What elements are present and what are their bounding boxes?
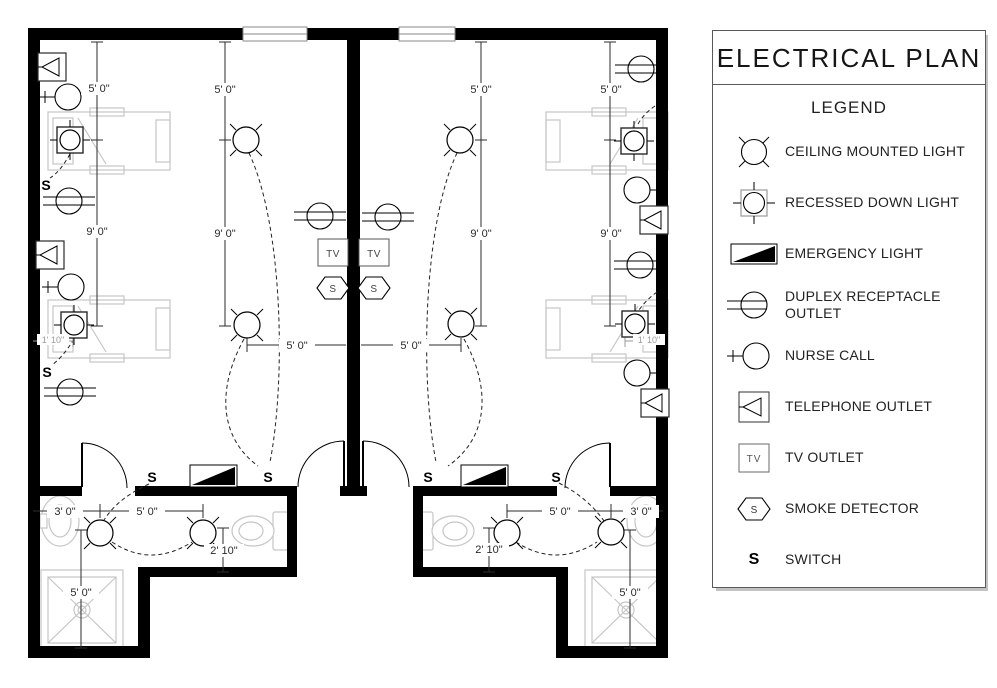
legend-label: TV OUTLET xyxy=(785,449,864,466)
legend-heading: LEGEND xyxy=(713,98,985,118)
legend-label: NURSE CALL xyxy=(785,347,875,364)
legend-item-ceiling-mounted-light: CEILING MOUNTED LIGHT xyxy=(713,126,985,177)
nurse-call-symbol xyxy=(39,84,81,110)
dim-label: 9' 0" xyxy=(470,228,491,240)
dim-label: 9' 0" xyxy=(86,226,107,238)
wall-bath-right xyxy=(413,486,423,577)
telephone-outlet-symbol xyxy=(640,206,668,234)
nurse-call-symbol xyxy=(42,274,84,300)
dim-label: 2' 10" xyxy=(210,545,238,557)
switch-icon-label: S xyxy=(749,551,760,569)
switch-symbol: S xyxy=(551,469,560,485)
legend-label: SMOKE DETECTOR xyxy=(785,500,919,517)
smoke-detector-label: S xyxy=(370,284,377,295)
dim-label: 9' 0" xyxy=(600,228,621,240)
shower xyxy=(585,570,667,650)
legend-label: EMERGENCY LIGHT xyxy=(785,245,923,262)
tv-outlet-icon: TV xyxy=(723,440,785,476)
switch-symbol: S xyxy=(147,469,156,485)
legend-label: TELEPHONE OUTLET xyxy=(785,398,932,415)
wall-bath-left xyxy=(287,486,297,577)
wall-bottom-right xyxy=(556,646,668,658)
switch-symbol: S xyxy=(42,364,51,380)
dim-label: 5' 0" xyxy=(600,84,621,96)
ceiling-light-symbol xyxy=(84,517,116,549)
door-swing xyxy=(363,441,409,487)
legend-items: CEILING MOUNTED LIGHT RECESSED DOWN LIGH… xyxy=(713,126,985,585)
shower xyxy=(41,570,123,650)
dim-label: 5' 0" xyxy=(214,84,235,96)
wiring-arc xyxy=(112,542,192,555)
toilet xyxy=(418,512,474,550)
recessed-light-icon xyxy=(723,181,785,225)
wiring-arc xyxy=(226,339,258,466)
switch-symbol: S xyxy=(423,469,432,485)
nurse-call-icon xyxy=(723,339,785,373)
door-swing xyxy=(82,443,127,488)
wall-bath-right xyxy=(556,567,568,658)
dim-label: 3' 0" xyxy=(54,506,75,518)
legend-item-smoke-detector: S SMOKE DETECTOR xyxy=(713,483,985,534)
telephone-outlet-symbol xyxy=(641,389,669,417)
duplex-outlet-symbol xyxy=(44,379,96,405)
legend-item-tv-outlet: TV TV OUTLET xyxy=(713,432,985,483)
sink xyxy=(40,496,79,546)
recessed-light-symbol xyxy=(614,121,654,161)
legend-item-emergency-light: EMERGENCY LIGHT xyxy=(713,228,985,279)
doors xyxy=(82,441,610,488)
telephone-outlet-icon xyxy=(723,389,785,425)
wiring-arc xyxy=(637,106,655,126)
legend-label: CEILING MOUNTED LIGHT xyxy=(785,143,965,160)
ceiling-light-symbol xyxy=(445,308,477,340)
duplex-outlet-symbol xyxy=(362,204,414,230)
legend-item-nurse-call: NURSE CALL xyxy=(713,330,985,381)
legend-label: SWITCH xyxy=(785,551,841,568)
telephone-outlet-symbol xyxy=(36,241,64,269)
wall-bath-left xyxy=(138,567,150,658)
dim-label: 5' 0" xyxy=(70,587,91,599)
bed xyxy=(546,296,668,362)
legend-item-duplex-receptacle-outlet: DUPLEX RECEPTACLE OUTLET xyxy=(713,279,985,330)
electrical-plan-page: { "legend": { "title": "ELECTRICAL PLAN"… xyxy=(0,0,997,688)
smoke-detector-icon-label: S xyxy=(751,505,758,516)
switch-symbol: S xyxy=(657,91,666,107)
legend-item-recessed-down-light: RECESSED DOWN LIGHT xyxy=(713,177,985,228)
wiring-arc xyxy=(448,339,482,466)
legend-item-switch: S SWITCH xyxy=(713,534,985,585)
tv-outlet-label: TV xyxy=(326,249,340,260)
door-swing xyxy=(565,443,610,488)
tv-outlet-label: TV xyxy=(367,249,381,260)
wiring-arc xyxy=(249,153,279,462)
legend-item-telephone-outlet: TELEPHONE OUTLET xyxy=(713,381,985,432)
switch-symbol: S xyxy=(658,278,667,294)
dim-label-small: 1' 10" xyxy=(638,335,660,345)
dim-label: 9' 0" xyxy=(214,228,235,240)
duplex-outlet-symbol xyxy=(43,188,95,214)
smoke-detector-icon: S xyxy=(723,493,785,525)
dim-label: 3' 0" xyxy=(630,506,651,518)
switch-symbol: S xyxy=(41,177,50,193)
duplex-outlet-symbol xyxy=(294,203,346,229)
recessed-light-symbol xyxy=(50,120,90,160)
dim-label: 5' 0" xyxy=(400,340,421,352)
dim-label: 5' 0" xyxy=(286,340,307,352)
legend-label: DUPLEX RECEPTACLE OUTLET xyxy=(785,288,965,322)
smoke-detector-label: S xyxy=(329,284,336,295)
dim-label: 5' 0" xyxy=(136,506,157,518)
wall-corridor xyxy=(610,486,656,496)
dim-label-small: 1' 10" xyxy=(42,335,64,345)
wiring-arc xyxy=(639,292,657,310)
ceiling-light-symbol xyxy=(595,516,627,548)
ceiling-light-symbol xyxy=(230,124,262,156)
wall-corridor xyxy=(40,486,82,496)
dim-label: 5' 0" xyxy=(549,506,570,518)
wiring-arc xyxy=(516,542,597,555)
legend-label: RECESSED DOWN LIGHT xyxy=(785,194,959,211)
wall-top xyxy=(28,28,668,40)
wall-center xyxy=(347,40,360,490)
legend-panel: ELECTRICAL PLAN LEGEND CEILING MOUNTED L… xyxy=(712,30,986,588)
dim-label: 5' 0" xyxy=(619,587,640,599)
duplex-outlet-icon xyxy=(723,288,785,322)
dim-label: 2' 10" xyxy=(475,544,503,556)
ceiling-light-icon xyxy=(723,131,785,173)
wall-corridor xyxy=(340,486,367,496)
walls xyxy=(28,28,668,658)
emergency-light-icon xyxy=(723,240,785,268)
switch-icon: S xyxy=(723,551,785,569)
telephone-outlet-symbol xyxy=(38,53,66,81)
door-swing xyxy=(298,441,344,487)
tv-outlet-icon-label: TV xyxy=(747,454,762,465)
dim-label: 5' 0" xyxy=(470,84,491,96)
switch-symbol: S xyxy=(263,469,272,485)
dim-label: 5' 0" xyxy=(88,83,109,95)
wall-bottom-left xyxy=(28,646,150,658)
sheet-title: ELECTRICAL PLAN xyxy=(713,31,985,85)
ceiling-light-symbol xyxy=(444,124,476,156)
ceiling-light-symbol xyxy=(231,309,263,341)
wiring-arc xyxy=(427,153,457,462)
